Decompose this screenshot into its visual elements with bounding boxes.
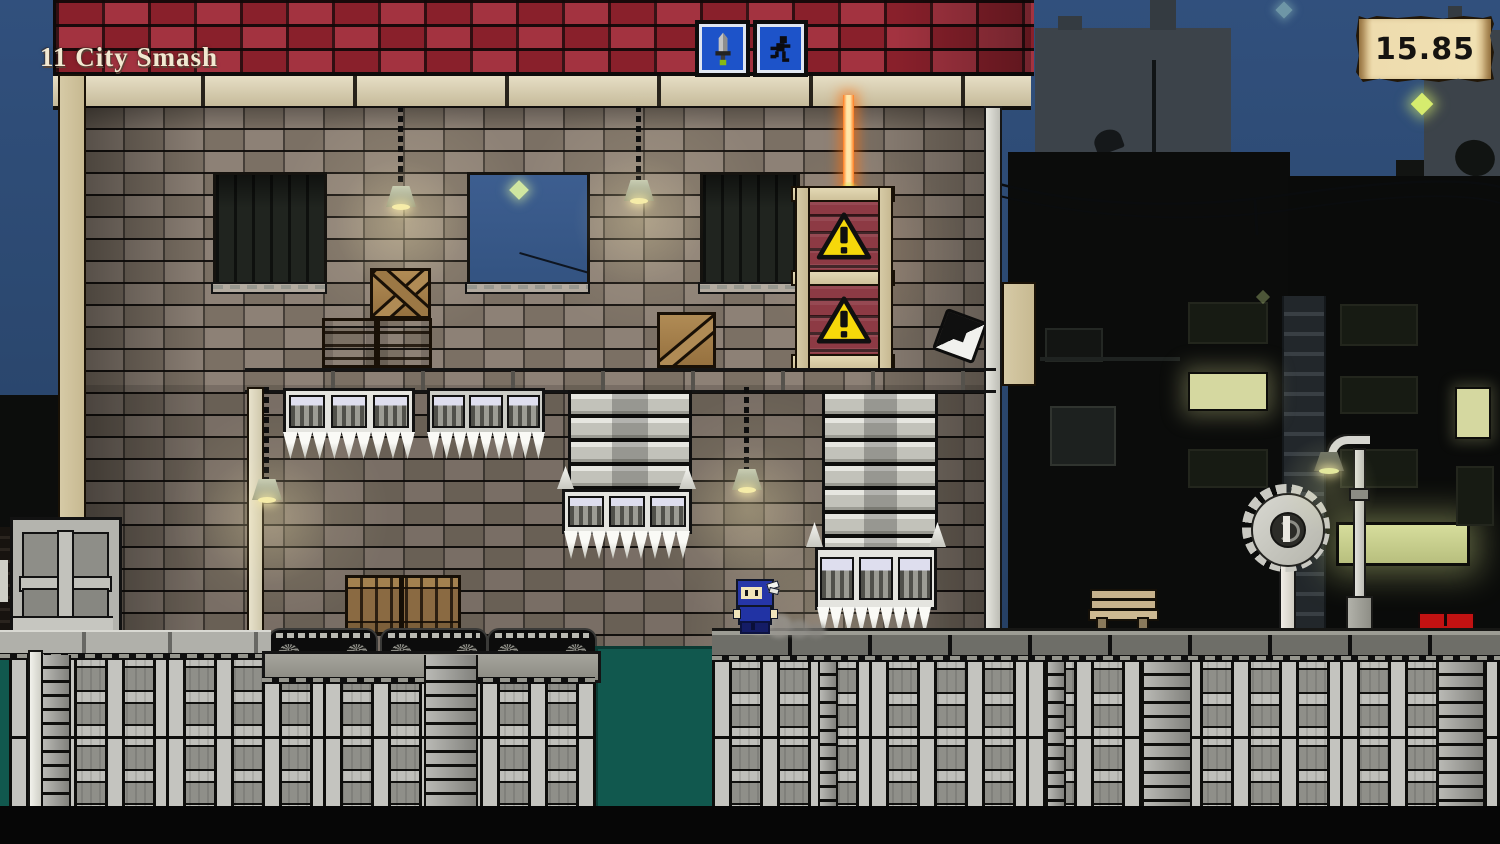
vent-window (609, 496, 645, 527)
spike-vent (562, 489, 692, 534)
ninja-character (733, 579, 777, 631)
ninja-hand (770, 609, 778, 619)
cap-dashes (388, 633, 480, 638)
lamp-chain (398, 106, 403, 188)
ground-panels (9, 739, 596, 807)
crate-brace (657, 312, 716, 368)
interior-post (247, 387, 264, 636)
slat-tower (568, 390, 692, 489)
vent-window (289, 395, 326, 428)
shuriken-center (953, 328, 967, 342)
vent-window (650, 496, 686, 527)
crate-mullion (57, 530, 74, 622)
laser-beam (843, 95, 854, 192)
lamp-bulb (392, 204, 410, 210)
dust-puff (806, 624, 826, 638)
window-sill (211, 282, 327, 294)
pilaster (818, 662, 838, 808)
timer-plaque: 15.85 (1356, 16, 1494, 82)
window-dark (1456, 466, 1494, 526)
window-sill (698, 282, 800, 294)
level-title: 11 City Smash (40, 42, 218, 73)
window-crate (10, 517, 122, 639)
lamp-bulb (738, 487, 756, 493)
slat-tower (822, 390, 938, 547)
ninja-hand (733, 609, 741, 619)
saw-blade (1242, 484, 1330, 572)
streetlamp-collar (1349, 488, 1370, 501)
light-slot (0, 560, 8, 602)
ninja-eye (755, 590, 758, 596)
pilaster (424, 655, 478, 808)
spike-vent (283, 388, 415, 435)
pilaster (41, 655, 71, 808)
runner-sign (753, 20, 808, 77)
ninja-legs (740, 621, 770, 634)
metal-panel (1050, 406, 1116, 466)
teal-wall-gap (595, 646, 716, 811)
warning-crate-stack (795, 186, 891, 368)
vent-window (373, 395, 410, 428)
ground-dash-right (712, 655, 1500, 662)
window-dark (1340, 376, 1418, 414)
saw-slot (1283, 516, 1290, 542)
sword-icon (710, 32, 736, 66)
crate-pane (71, 532, 109, 580)
pilaster (1142, 662, 1192, 808)
window-lit (1188, 372, 1268, 411)
antenna-mast (1152, 60, 1156, 154)
game-viewport[interactable]: 11 City Smash 15.85 (0, 0, 1500, 844)
bench (1090, 589, 1153, 629)
roof-beam (53, 76, 1031, 110)
lamp-bulb (630, 198, 648, 204)
wooden-crate (370, 268, 431, 319)
red-block-divider (1444, 614, 1447, 626)
wooden-crate (322, 318, 377, 368)
vent-window (898, 557, 932, 601)
vent-window (331, 395, 368, 428)
warning-crate (806, 198, 882, 274)
window-dark (1188, 302, 1268, 344)
lamp-chain (744, 387, 749, 469)
building-ledge (1040, 357, 1180, 361)
glow-particle (509, 180, 529, 200)
crate-pane (22, 532, 60, 580)
crate-divider (399, 578, 404, 632)
lamp-chain (264, 387, 269, 479)
vent-window (859, 557, 893, 601)
window-sill (465, 282, 590, 294)
cap-dashes (276, 633, 370, 638)
exclamation-triangle-icon (816, 296, 872, 344)
wide-wooden-crate (345, 575, 461, 635)
cap-dashes (495, 633, 589, 638)
sword-sign (695, 20, 750, 77)
vent-window (507, 395, 540, 428)
rooftop-antenna (1150, 0, 1176, 30)
window-opening-dark (700, 172, 800, 288)
glow-particle (1276, 2, 1293, 19)
crate-frame-post (795, 186, 810, 370)
vent-window (568, 496, 604, 527)
spike-vent (427, 388, 545, 435)
window-dark (1340, 304, 1418, 346)
ninja-eye (745, 590, 748, 596)
window-dark (1188, 449, 1268, 488)
window-opening-sky (467, 172, 590, 288)
runner-icon (767, 33, 795, 65)
vent-window (820, 557, 854, 601)
crate-frame-post (878, 186, 893, 370)
timer-value: 15.85 (1375, 32, 1475, 67)
wooden-crate (377, 318, 432, 368)
side-post (1002, 282, 1036, 386)
warning-crate (806, 282, 882, 358)
lamp-chain (636, 106, 641, 182)
streetlamp-bulb (1319, 468, 1339, 474)
vent-window (432, 395, 465, 428)
pilaster (1046, 662, 1066, 808)
window-lit (1455, 387, 1491, 439)
exclamation-triangle-icon (816, 212, 872, 260)
vent-window (469, 395, 502, 428)
ninja-leg-gap (751, 623, 755, 630)
teal-wall-sliver (0, 656, 9, 808)
window-wire (519, 252, 590, 276)
rooftop-block (1058, 16, 1082, 30)
window-opening-dark (213, 172, 327, 288)
street-floor (0, 806, 1500, 844)
lamp-bulb (258, 497, 276, 503)
wooden-crate (657, 312, 716, 368)
power-lines (995, 165, 1500, 235)
pilaster (1437, 662, 1485, 808)
